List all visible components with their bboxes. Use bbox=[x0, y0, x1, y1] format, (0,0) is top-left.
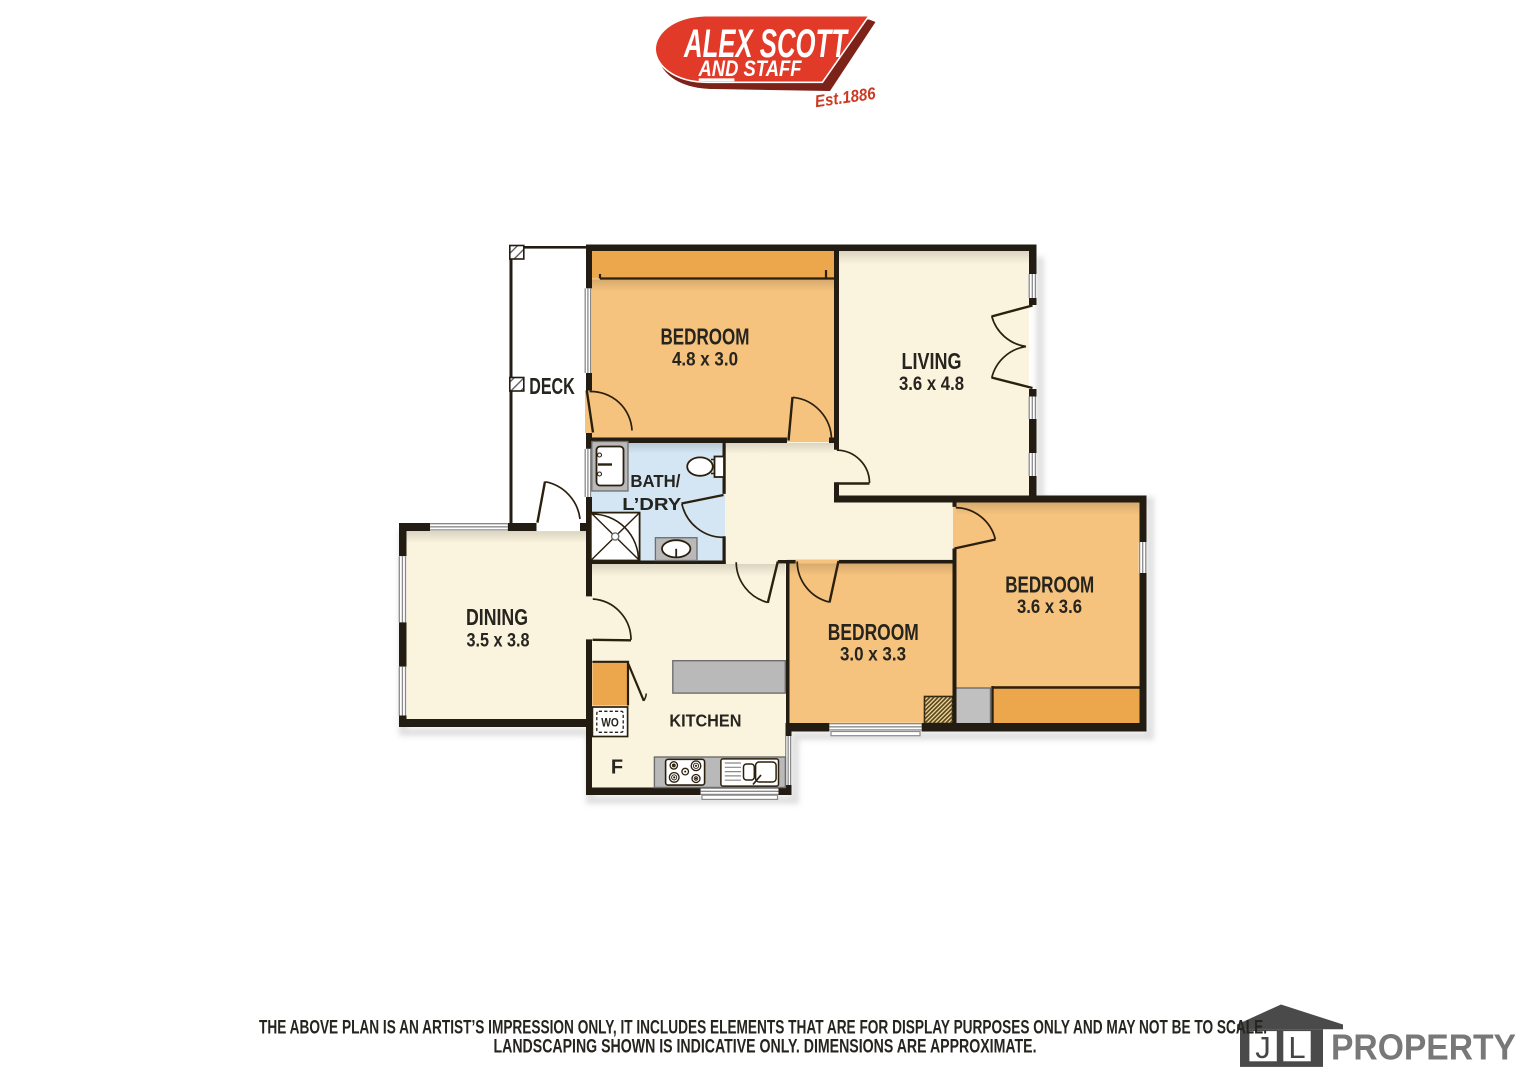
svg-text:AND STAFF: AND STAFF bbox=[698, 56, 803, 81]
svg-text:WO: WO bbox=[601, 718, 619, 730]
svg-text:F: F bbox=[611, 757, 623, 779]
svg-text:BEDROOM: BEDROOM bbox=[1005, 572, 1094, 598]
svg-text:3.0 x 3.3: 3.0 x 3.3 bbox=[840, 645, 906, 666]
svg-text:LANDSCAPING SHOWN IS INDICATIV: LANDSCAPING SHOWN IS INDICATIVE ONLY. DI… bbox=[494, 1036, 1037, 1058]
svg-text:DECK: DECK bbox=[529, 373, 575, 399]
svg-text:3.5 x 3.8: 3.5 x 3.8 bbox=[467, 631, 530, 652]
svg-text:DINING: DINING bbox=[466, 604, 528, 630]
svg-text:KITCHEN: KITCHEN bbox=[669, 711, 741, 731]
svg-text:3.6 x 4.8: 3.6 x 4.8 bbox=[899, 374, 964, 395]
svg-text:LIVING: LIVING bbox=[902, 348, 962, 374]
svg-text:BEDROOM: BEDROOM bbox=[828, 619, 919, 645]
svg-text:L’DRY: L’DRY bbox=[622, 494, 681, 514]
svg-text:BEDROOM: BEDROOM bbox=[661, 324, 750, 350]
svg-text:4.8 x 3.0: 4.8 x 3.0 bbox=[672, 350, 738, 371]
svg-text:PROPERTY: PROPERTY bbox=[1331, 1027, 1516, 1068]
svg-text:BATH/: BATH/ bbox=[630, 471, 680, 491]
svg-text:3.6 x 3.6: 3.6 x 3.6 bbox=[1017, 597, 1082, 618]
svg-text:L: L bbox=[1288, 1030, 1305, 1065]
